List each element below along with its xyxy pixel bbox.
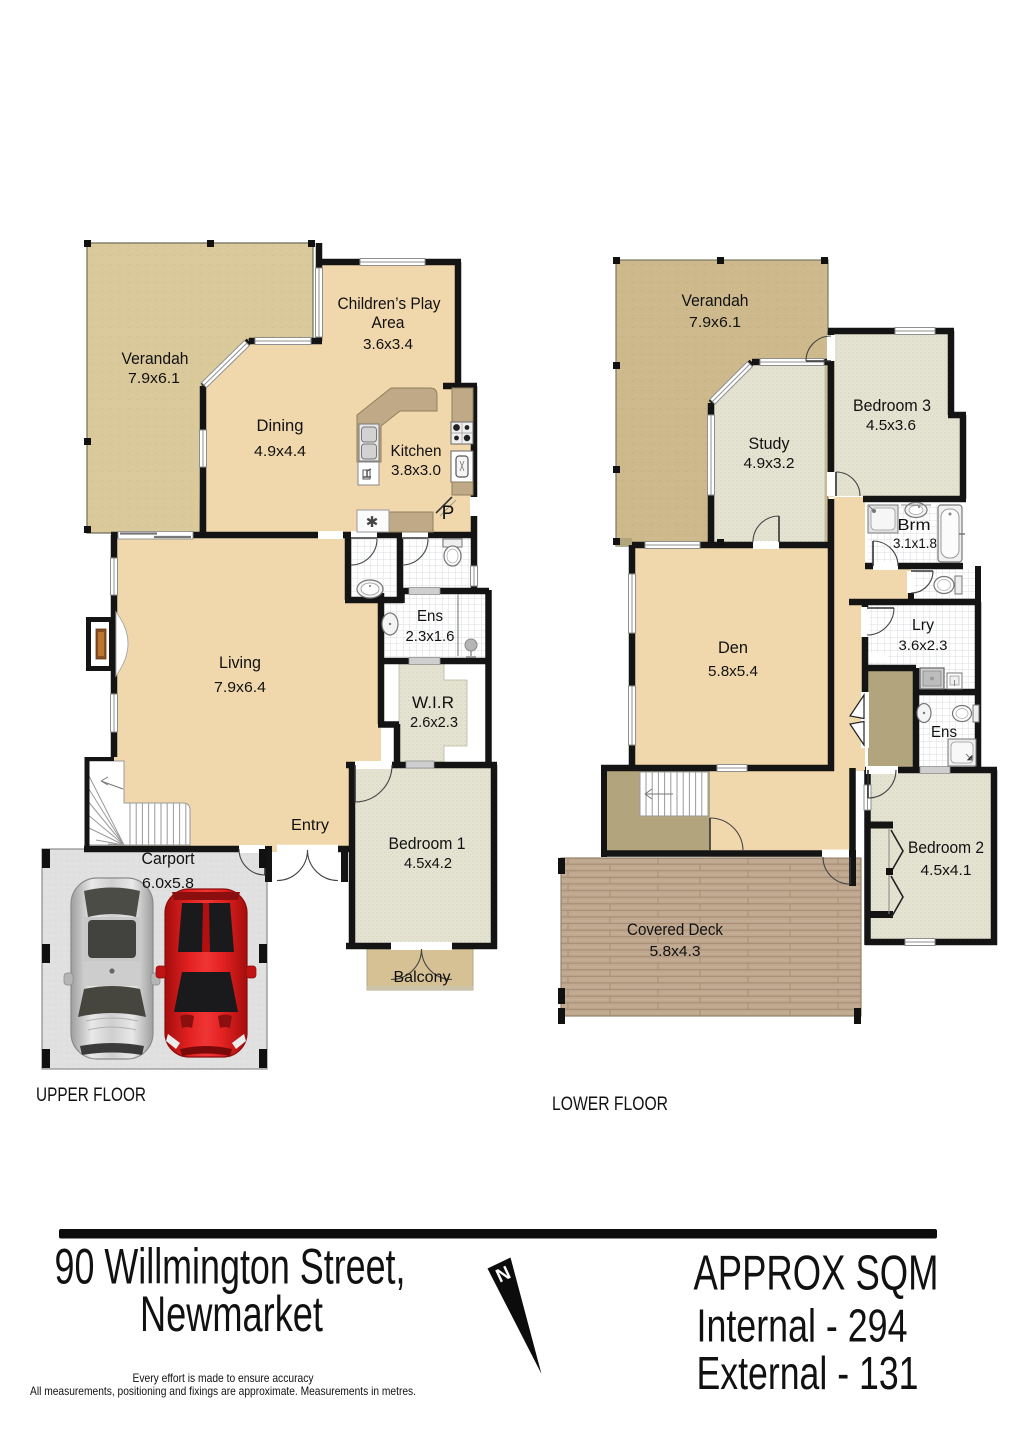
svg-text:Balcony: Balcony	[394, 969, 451, 986]
svg-text:Kitchen: Kitchen	[391, 443, 442, 460]
svg-text:7.9x6.1: 7.9x6.1	[128, 370, 180, 387]
svg-text:Bedroom 1: Bedroom 1	[389, 834, 466, 853]
svg-text:Area: Area	[372, 313, 405, 332]
svg-text:2.6x2.3: 2.6x2.3	[410, 714, 458, 731]
svg-text:4.9x3.2: 4.9x3.2	[744, 455, 795, 472]
svg-text:5.8x4.3: 5.8x4.3	[650, 943, 701, 960]
svg-text:Den: Den	[718, 638, 748, 657]
svg-text:LOWER FLOOR: LOWER FLOOR	[552, 1094, 668, 1115]
svg-text:Ens: Ens	[417, 608, 443, 625]
svg-text:4.5x4.1: 4.5x4.1	[921, 862, 972, 879]
svg-text:Every effort is made to ensure: Every effort is made to ensure accuracy	[133, 1371, 314, 1385]
svg-text:Study: Study	[749, 434, 790, 453]
svg-text:3.1x1.8: 3.1x1.8	[893, 535, 937, 551]
svg-text:External - 131: External - 131	[697, 1347, 919, 1399]
svg-text:Ens: Ens	[931, 724, 957, 741]
svg-text:UPPER FLOOR: UPPER FLOOR	[36, 1085, 146, 1106]
svg-text:4.5x3.6: 4.5x3.6	[866, 417, 916, 434]
svg-text:7.9x6.4: 7.9x6.4	[214, 679, 266, 696]
svg-text:All measurements, positioning: All measurements, positioning and fixing…	[30, 1384, 416, 1398]
svg-text:Verandah: Verandah	[122, 349, 189, 368]
svg-text:Carport: Carport	[142, 849, 195, 868]
svg-text:Lry: Lry	[912, 617, 934, 634]
svg-text:3.8x3.0: 3.8x3.0	[391, 462, 441, 479]
svg-text:Living: Living	[219, 653, 261, 672]
svg-text:Entry: Entry	[291, 817, 329, 834]
svg-text:5.8x5.4: 5.8x5.4	[708, 663, 758, 680]
svg-text:7.9x6.1: 7.9x6.1	[689, 314, 741, 331]
svg-text:Bedroom 3: Bedroom 3	[853, 396, 931, 415]
svg-text:2.3x1.6: 2.3x1.6	[406, 628, 455, 645]
svg-text:W.I.R: W.I.R	[412, 693, 454, 712]
svg-text:6.0x5.8: 6.0x5.8	[142, 875, 194, 892]
svg-text:4.5x4.2: 4.5x4.2	[404, 855, 452, 872]
svg-text:Internal - 294: Internal - 294	[697, 1300, 908, 1352]
svg-text:APPROX SQM: APPROX SQM	[694, 1247, 939, 1301]
svg-text:3.6x2.3: 3.6x2.3	[899, 637, 948, 653]
svg-text:Dining: Dining	[257, 416, 304, 435]
svg-text:P: P	[442, 503, 455, 524]
svg-text:Bedroom 2: Bedroom 2	[908, 838, 984, 857]
svg-text:4.9x4.4: 4.9x4.4	[254, 443, 306, 460]
svg-text:Covered Deck: Covered Deck	[627, 920, 723, 939]
svg-text:Verandah: Verandah	[682, 291, 749, 310]
svg-text:Children’s Play: Children’s Play	[338, 294, 441, 313]
svg-text:✱: ✱	[366, 514, 379, 531]
svg-text:3.6x3.4: 3.6x3.4	[363, 336, 413, 353]
svg-text:Brm: Brm	[898, 517, 931, 534]
svg-text:Newmarket: Newmarket	[140, 1286, 323, 1342]
